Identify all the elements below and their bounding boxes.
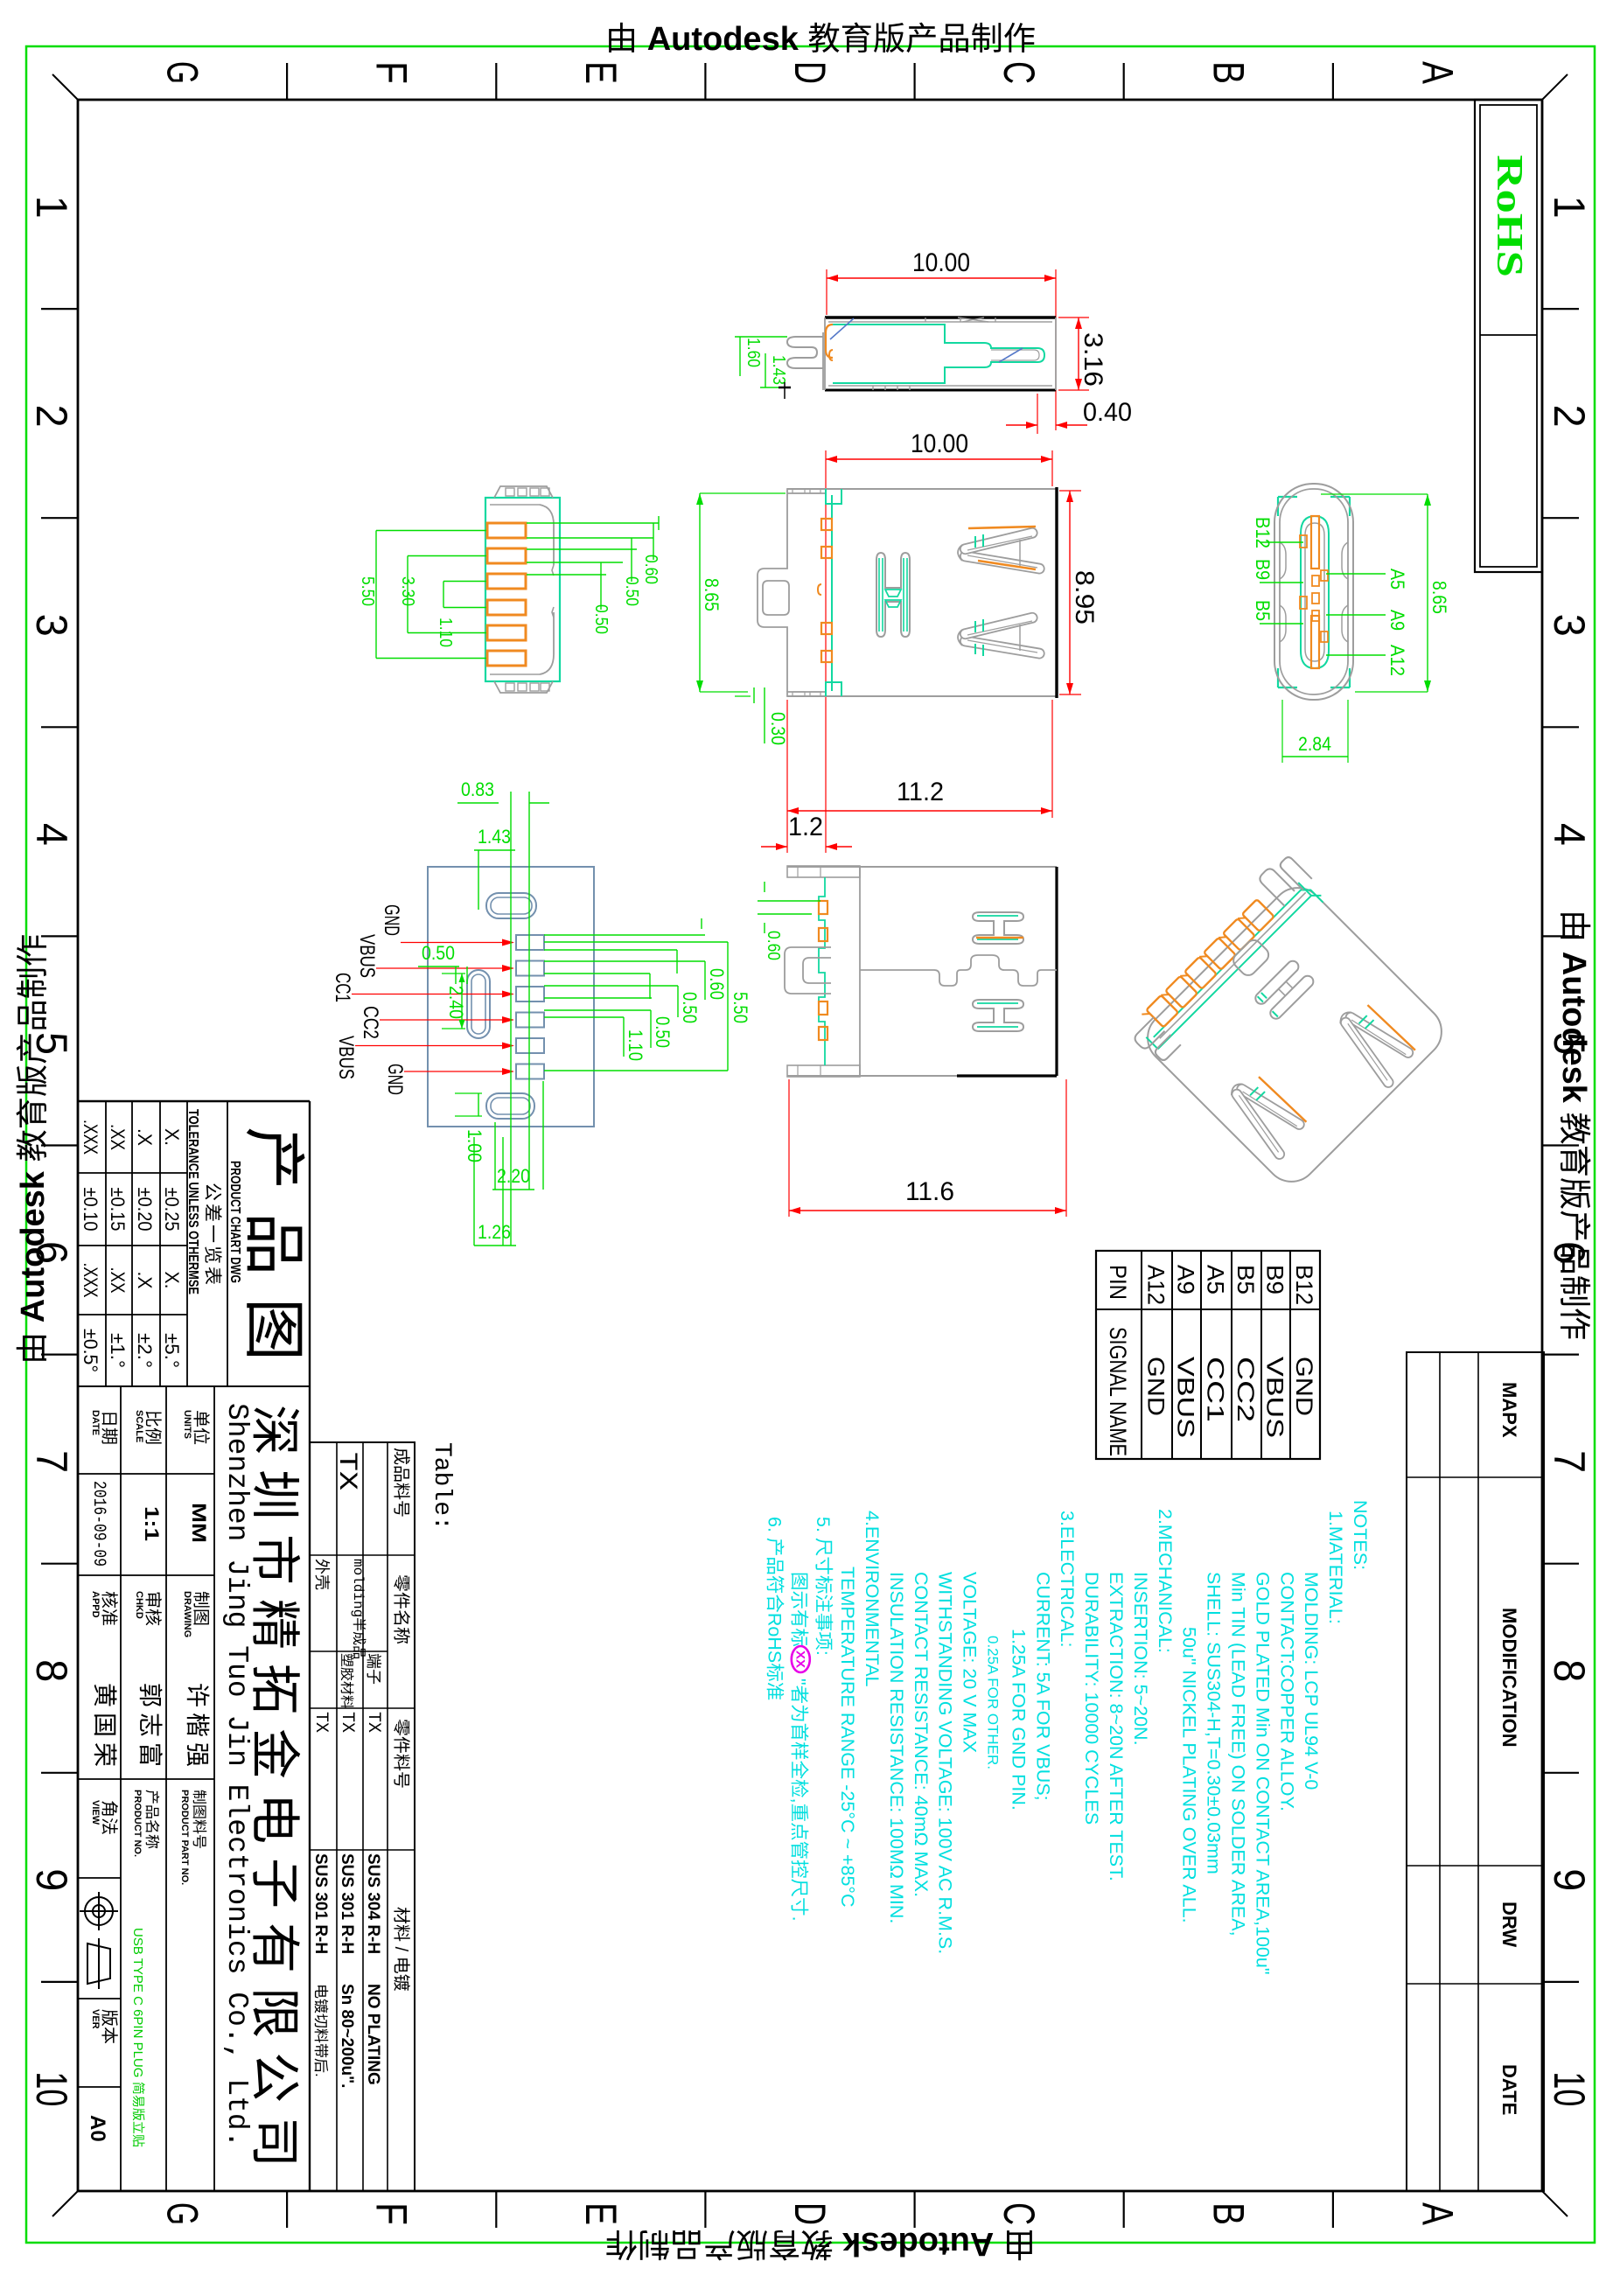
svg-text:SUS 304 R-H: SUS 304 R-H <box>364 1853 382 1954</box>
svg-text:A5: A5 <box>1203 1265 1229 1295</box>
svg-text:CURRENT: 5A FOR VBUS;: CURRENT: 5A FOR VBUS; <box>1032 1572 1053 1801</box>
svg-text:8.65: 8.65 <box>701 578 723 611</box>
svg-text:G: G <box>158 61 207 84</box>
svg-text:±5.°: ±5.° <box>161 1333 183 1368</box>
svg-text:F: F <box>367 2202 416 2225</box>
svg-text:/: / <box>391 1947 410 1952</box>
svg-text:.: . <box>788 1916 809 1922</box>
svg-text:10.00: 10.00 <box>911 429 968 458</box>
svg-text:GND: GND <box>1291 1357 1317 1416</box>
svg-text:5.: 5. <box>813 1517 834 1532</box>
svg-text:4: 4 <box>1545 823 1594 846</box>
svg-text:.: . <box>312 2073 329 2077</box>
svg-text:0.50: 0.50 <box>622 576 641 606</box>
svg-text:Shenzhen Jing Tuo Jin Electron: Shenzhen Jing Tuo Jin Electronics Co., L… <box>220 1403 253 2148</box>
svg-text:F: F <box>367 61 416 84</box>
svg-text:CC1: CC1 <box>331 973 354 1002</box>
svg-text:USB TYPE C 6PIN PLUG: USB TYPE C 6PIN PLUG <box>130 1928 145 2077</box>
svg-text:10: 10 <box>1545 2071 1594 2106</box>
svg-text:X.: X. <box>161 1272 183 1289</box>
svg-text:8: 8 <box>1545 1659 1594 1682</box>
svg-text:B12: B12 <box>1291 1265 1317 1305</box>
svg-text:1.10: 1.10 <box>436 618 455 647</box>
svg-text:PRODUCT NO.: PRODUCT NO. <box>132 1790 143 1857</box>
svg-text:Autodesk: Autodesk <box>1555 952 1592 1104</box>
svg-text:4.ENVIRONMENTAL: 4.ENVIRONMENTAL <box>862 1511 883 1687</box>
svg-text:.XX: .XX <box>107 1267 129 1294</box>
svg-text:±0.5°: ±0.5° <box>80 1329 101 1372</box>
svg-text:B9: B9 <box>1252 559 1274 580</box>
svg-text:±0.15: ±0.15 <box>107 1188 129 1232</box>
svg-text:G: G <box>158 2202 207 2225</box>
svg-text:3.30: 3.30 <box>398 576 417 606</box>
svg-text:1.43: 1.43 <box>769 355 788 385</box>
svg-text:4: 4 <box>27 823 76 846</box>
svg-text:E: E <box>576 2202 625 2225</box>
svg-text:.XX: .XX <box>107 1124 129 1150</box>
svg-text:10: 10 <box>27 2071 76 2106</box>
svg-text:±2.°: ±2.° <box>134 1333 156 1368</box>
svg-text:Autodesk: Autodesk <box>841 2225 994 2262</box>
svg-text:50u" NICKEL PLATING OVER ALL.: 50u" NICKEL PLATING OVER ALL. <box>1179 1627 1200 1923</box>
svg-text:0.60: 0.60 <box>641 555 660 584</box>
svg-text:VBUS: VBUS <box>1262 1357 1288 1438</box>
svg-text:PRODUCT PART NO.: PRODUCT PART NO. <box>179 1790 190 1885</box>
svg-text:B12: B12 <box>1252 517 1274 548</box>
svg-text:X.: X. <box>161 1128 183 1146</box>
svg-text:GOLD PLATED Min ON CONTACT ARE: GOLD PLATED Min ON CONTACT AREA,100u" <box>1252 1572 1273 1974</box>
svg-text:DATE: DATE <box>1498 2064 1520 2115</box>
svg-text:11.6: 11.6 <box>905 1177 954 1206</box>
svg-text:INSULATION RESISTANCE: 100MΩ M: INSULATION RESISTANCE: 100MΩ MIN. <box>886 1572 907 1923</box>
svg-text:VBUS: VBUS <box>355 934 379 978</box>
svg-text:A0: A0 <box>86 2115 109 2142</box>
svg-text:±1.°: ±1.° <box>107 1333 129 1368</box>
svg-text:GND: GND <box>380 904 403 936</box>
svg-text:D: D <box>786 2202 834 2225</box>
svg-text:3.16: 3.16 <box>1079 332 1107 387</box>
svg-text:E: E <box>576 61 625 84</box>
svg-text:A12: A12 <box>1143 1265 1170 1305</box>
svg-text:CC2: CC2 <box>359 1006 382 1039</box>
svg-text:VBUS: VBUS <box>1173 1357 1199 1438</box>
svg-text:PIN: PIN <box>1105 1265 1131 1300</box>
svg-text:.XXX: .XXX <box>80 1263 101 1298</box>
svg-text:PRODUCT CHART DWG: PRODUCT CHART DWG <box>227 1161 242 1283</box>
svg-text:0.50: 0.50 <box>422 942 455 964</box>
svg-text:A9: A9 <box>1386 610 1408 631</box>
svg-text:1.MATERIAL:: 1.MATERIAL: <box>1325 1511 1346 1624</box>
svg-text:3: 3 <box>27 614 76 637</box>
svg-text:VIEW: VIEW <box>90 1800 101 1825</box>
svg-text:VER: VER <box>90 2009 101 2029</box>
svg-text:1: 1 <box>27 196 76 219</box>
svg-text:Autodesk: Autodesk <box>647 21 800 58</box>
svg-text:0.83: 0.83 <box>461 778 494 800</box>
svg-text:2: 2 <box>27 405 76 428</box>
svg-text:CC2: CC2 <box>1232 1357 1259 1422</box>
svg-text:0.25A FOR OTHER.: 0.25A FOR OTHER. <box>985 1636 1002 1769</box>
svg-text:A9: A9 <box>1173 1265 1199 1295</box>
svg-text:0.60: 0.60 <box>764 931 783 960</box>
svg-text:1.26: 1.26 <box>478 1221 511 1243</box>
svg-text:D: D <box>786 61 834 84</box>
svg-text:±0.20: ±0.20 <box>134 1188 156 1232</box>
svg-text:A: A <box>1413 61 1462 84</box>
svg-text:1: 1 <box>1545 196 1594 219</box>
svg-text:8.95: 8.95 <box>1070 570 1099 625</box>
svg-text:VBUS: VBUS <box>334 1036 358 1079</box>
svg-text:DRAWING: DRAWING <box>182 1591 192 1637</box>
svg-text:5.50: 5.50 <box>358 576 377 606</box>
svg-text:MAPX: MAPX <box>1498 1382 1520 1438</box>
svg-text:XX: XX <box>793 1650 807 1669</box>
svg-text:1:1: 1:1 <box>141 1506 163 1541</box>
svg-text:1.60: 1.60 <box>744 338 763 367</box>
svg-text:.X: .X <box>134 1272 156 1289</box>
svg-text:0.60: 0.60 <box>706 968 728 1000</box>
svg-text:DATE: DATE <box>90 1410 101 1435</box>
svg-text:CC1: CC1 <box>1203 1357 1229 1422</box>
svg-text:2016-09-09: 2016-09-09 <box>88 1481 108 1567</box>
svg-text:CONTACT:COPPER ALLOY.: CONTACT:COPPER ALLOY. <box>1276 1572 1297 1811</box>
svg-text:CHKD: CHKD <box>134 1591 144 1619</box>
svg-text:TX: TX <box>332 1452 361 1490</box>
svg-text:WITHSTANDING VOLTAGE: 100V AC: WITHSTANDING VOLTAGE: 100V AC R.M.S. <box>935 1572 956 1954</box>
svg-text:3: 3 <box>1545 614 1594 637</box>
svg-text:DURABILITY: 10000 CYCLES: DURABILITY: 10000 CYCLES <box>1081 1572 1102 1825</box>
svg-text:SIGNAL NAME: SIGNAL NAME <box>1105 1327 1131 1456</box>
svg-text:8.65: 8.65 <box>1428 581 1450 614</box>
svg-text:GND: GND <box>1143 1357 1170 1416</box>
svg-text:B9: B9 <box>1262 1265 1288 1295</box>
svg-text:.XXX: .XXX <box>80 1120 101 1155</box>
svg-text:": " <box>788 1678 809 1685</box>
svg-text:2: 2 <box>1545 405 1594 428</box>
svg-text:APPD: APPD <box>90 1591 101 1618</box>
svg-text:0.50: 0.50 <box>652 1016 674 1048</box>
svg-text:±0.25: ±0.25 <box>161 1188 183 1232</box>
svg-text:DRW: DRW <box>1498 1902 1520 1947</box>
svg-text:0.40: 0.40 <box>1083 398 1132 427</box>
svg-text:C: C <box>995 61 1044 84</box>
svg-text:1.25A FOR GND PIN.: 1.25A FOR GND PIN. <box>1008 1629 1029 1811</box>
svg-text:C: C <box>995 2202 1044 2225</box>
svg-text:2.MECHANICAL:: 2.MECHANICAL: <box>1155 1509 1176 1653</box>
svg-text:SUS 301 R-H: SUS 301 R-H <box>338 1853 356 1954</box>
svg-text:±0.10: ±0.10 <box>80 1188 101 1232</box>
svg-text:SHELL: SUS304-H,T=0.30±0.03mm: SHELL: SUS304-H,T=0.30±0.03mm <box>1204 1572 1225 1874</box>
svg-text:NO PLATING: NO PLATING <box>364 1984 382 2085</box>
svg-text:9: 9 <box>27 1868 76 1891</box>
svg-text:,: , <box>788 1798 809 1804</box>
svg-text:Min TIN (LEAD FREE) ON SOLDER: Min TIN (LEAD FREE) ON SOLDER AREA, <box>1228 1572 1249 1937</box>
svg-text:TEMPERATURE RANGE -25°C ~ +85°: TEMPERATURE RANGE -25°C ~ +85°C <box>837 1567 858 1908</box>
svg-text:5: 5 <box>27 1032 76 1055</box>
svg-text:Autodesk: Autodesk <box>15 1170 52 1322</box>
svg-text:TX: TX <box>363 1712 383 1733</box>
svg-text:11.2: 11.2 <box>897 778 944 806</box>
svg-text:B: B <box>1204 2202 1253 2225</box>
svg-text:0.30: 0.30 <box>767 712 789 745</box>
svg-text:2.20: 2.20 <box>497 1165 530 1187</box>
svg-text:8: 8 <box>27 1659 76 1682</box>
svg-text:0.50: 0.50 <box>591 604 611 634</box>
svg-text:1.10: 1.10 <box>625 1029 646 1061</box>
svg-text:0.50: 0.50 <box>679 992 701 1023</box>
svg-text:B5: B5 <box>1252 600 1274 621</box>
svg-text:10.00: 10.00 <box>912 248 970 277</box>
svg-text:EXTRACTION: 8~20N AFTER TEST.: EXTRACTION: 8~20N AFTER TEST. <box>1106 1572 1127 1881</box>
svg-text:MOLDING: LCP UL94 V-0: MOLDING: LCP UL94 V-0 <box>1301 1572 1322 1790</box>
svg-text:1.43: 1.43 <box>478 826 511 848</box>
svg-text::: : <box>813 1650 834 1656</box>
svg-text:9: 9 <box>1545 1868 1594 1891</box>
svg-text:B5: B5 <box>1232 1265 1259 1295</box>
svg-text:NOTES:: NOTES: <box>1350 1500 1371 1570</box>
svg-text:Table:: Table: <box>428 1442 455 1531</box>
svg-text:TX: TX <box>337 1712 357 1733</box>
svg-text:RoHS: RoHS <box>764 1613 785 1663</box>
svg-text:INSERTION: 5~20N.: INSERTION: 5~20N. <box>1130 1572 1151 1746</box>
svg-text:CONTACT RESISTANCE: 40mΩ MAX.: CONTACT RESISTANCE: 40mΩ MAX. <box>911 1572 932 1897</box>
svg-text:A: A <box>1413 2202 1462 2225</box>
svg-text:TOLERANCE UNLESS OTHERMSE: TOLERANCE UNLESS OTHERMSE <box>185 1109 200 1295</box>
svg-text:RoHS: RoHS <box>1489 155 1529 277</box>
svg-text:Sn 80~200u".: Sn 80~200u". <box>338 1984 356 2088</box>
svg-text:MODIFICATION: MODIFICATION <box>1498 1608 1520 1748</box>
svg-text:2.84: 2.84 <box>1298 733 1331 755</box>
svg-text:molding: molding <box>350 1559 366 1617</box>
svg-text:VOLTAGE: 20 V MAX: VOLTAGE: 20 V MAX <box>960 1572 981 1753</box>
svg-text:UNITS: UNITS <box>182 1410 192 1439</box>
svg-text:7: 7 <box>1545 1450 1594 1473</box>
svg-text:SCALE: SCALE <box>134 1410 144 1442</box>
svg-text:5.50: 5.50 <box>730 992 751 1023</box>
svg-text:6.: 6. <box>764 1517 785 1532</box>
svg-text:A12: A12 <box>1386 645 1408 676</box>
svg-text:3.ELECTRICAL:: 3.ELECTRICAL: <box>1057 1511 1078 1648</box>
svg-text:7: 7 <box>27 1450 76 1473</box>
svg-text:B: B <box>1204 61 1253 84</box>
svg-text:GND: GND <box>383 1064 407 1095</box>
svg-text:1.2: 1.2 <box>788 813 823 841</box>
svg-text:SUS 301 R-H: SUS 301 R-H <box>311 1853 330 1954</box>
svg-text:2.40: 2.40 <box>445 986 467 1019</box>
svg-text:MM: MM <box>188 1503 210 1543</box>
svg-text:TX: TX <box>311 1712 331 1733</box>
svg-text:A5: A5 <box>1386 569 1408 590</box>
svg-text:.X: .X <box>134 1128 156 1146</box>
